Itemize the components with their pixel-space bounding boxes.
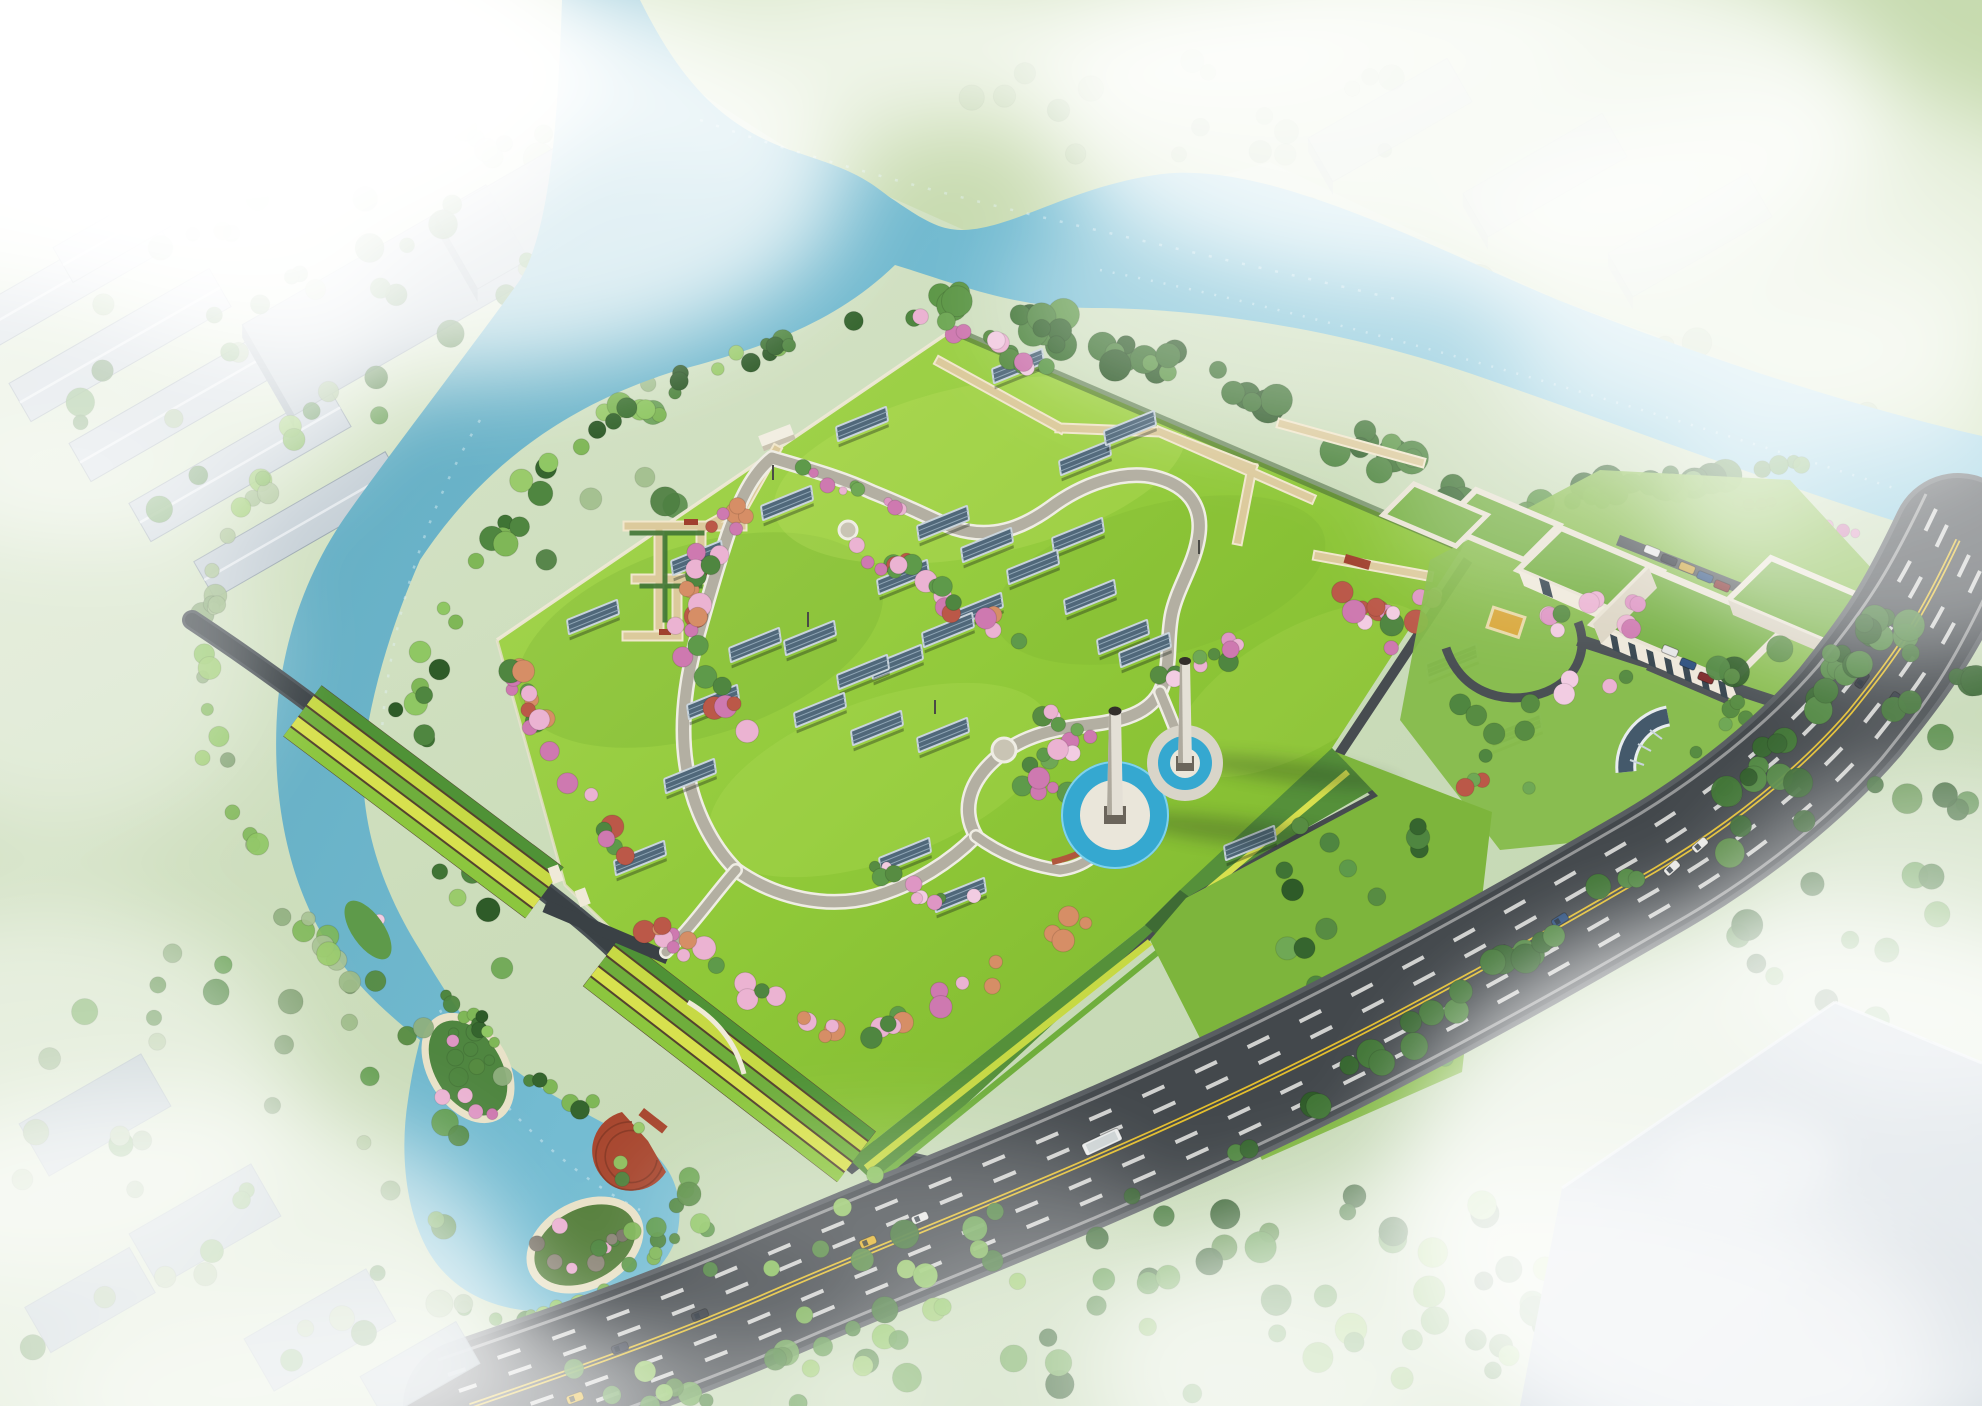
path-node-plaza [992,738,1016,762]
ventilation-tower-west [1107,707,1123,816]
ventilation-tower-east [1178,657,1192,763]
aerial-render-canvas [0,0,1982,1406]
path-node-plaza [839,521,857,539]
scene-svg [0,0,1982,1406]
